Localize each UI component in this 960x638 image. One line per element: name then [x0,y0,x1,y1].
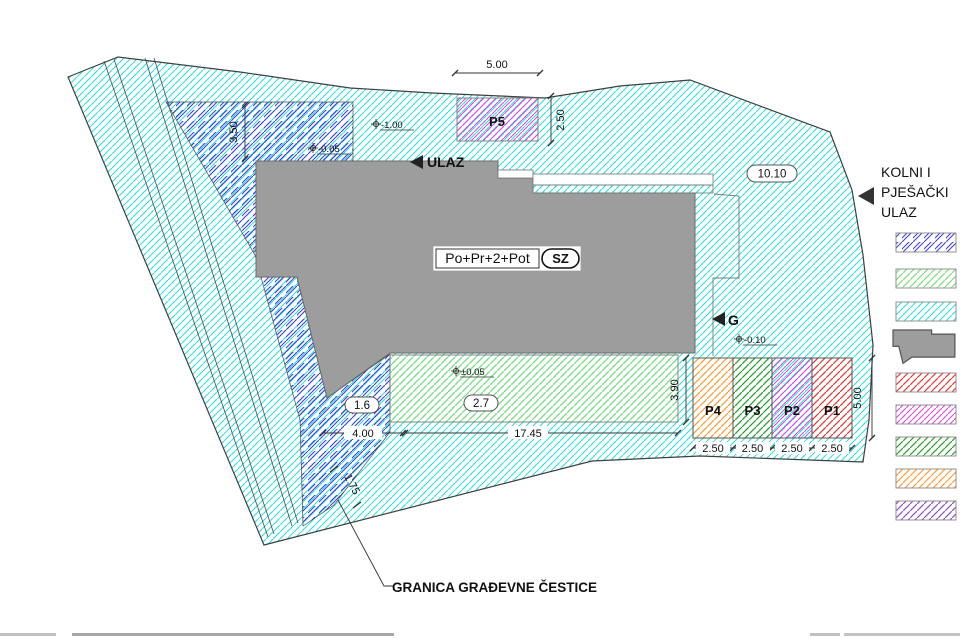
parking-stall-p3 [733,358,772,438]
access-label-line: PJEŠAČKI [881,184,949,200]
access-label-line: KOLNI I [881,164,931,180]
legend-building-footprint-icon [893,330,955,363]
building-storeys-label: Po+Pr+2+Pot [445,250,530,266]
stall-label: P1 [824,403,840,418]
dim-p5-width: 5.00 [452,59,543,76]
legend-swatch-orange-hatch [896,469,956,488]
svg-text:2.50: 2.50 [742,443,763,455]
svg-text:1.6: 1.6 [354,400,370,412]
area-label-width: 10.10 [747,165,797,182]
p5-label: P5 [489,114,505,129]
garage-label: G [728,312,739,328]
parking-stall-p2 [772,358,812,438]
svg-text:4.00: 4.00 [352,428,373,440]
orientation-label: SZ [552,251,569,266]
svg-text:-1.00: -1.00 [381,120,403,131]
stall-label: P2 [784,403,800,418]
area-label-strip: 1.6 [345,397,379,413]
stall-label: P4 [705,403,722,418]
legend-swatch-magenta-hatch [896,405,956,424]
legend-swatch-green-hatch [896,269,956,288]
svg-text:17.45: 17.45 [514,428,542,440]
svg-text:2.50: 2.50 [555,109,567,130]
legend-swatch-purple-hatch [896,501,956,520]
svg-text:2.50: 2.50 [821,443,842,455]
svg-text:2.7: 2.7 [473,398,489,410]
site-plan-page: P5 5.00 2.50 3.50 -1.00 -0.05 [0,0,960,638]
svg-text:5.00: 5.00 [486,59,507,71]
svg-text:-0.10: -0.10 [744,335,766,346]
entrance-label: ULAZ [427,154,465,170]
parking-stall-p4 [693,358,733,438]
svg-text:3.50: 3.50 [228,121,240,142]
parking-stall-p1 [812,358,852,438]
frame-lines [0,633,960,636]
svg-text:5.00: 5.00 [852,387,864,408]
svg-text:-0.05: -0.05 [318,144,340,155]
building-label-box: Po+Pr+2+Pot SZ [433,246,581,271]
svg-text:2.50: 2.50 [781,443,802,455]
terrace-area-green [390,355,678,422]
parking-stalls [693,358,852,438]
svg-text:2.50: 2.50 [702,443,723,455]
svg-text:10.10: 10.10 [758,169,787,181]
legend-swatch-cyan-hatch [896,302,956,321]
access-label-line: ULAZ [881,204,917,220]
area-label-terrace: 2.7 [464,395,498,411]
legend-swatch-dark-green-hatch [896,437,956,456]
access-arrow-icon [858,187,874,205]
svg-text:±0.05: ±0.05 [461,367,485,378]
legend-swatch-violet-hatch [896,233,956,252]
site-plan-svg: P5 5.00 2.50 3.50 -1.00 -0.05 [0,0,960,638]
svg-text:3.90: 3.90 [669,379,681,400]
stall-label: P3 [745,403,761,418]
boundary-note-label: GRANICA GRAĐEVNE ČESTICE [392,580,597,595]
legend-swatch-red-hatch [896,373,956,392]
